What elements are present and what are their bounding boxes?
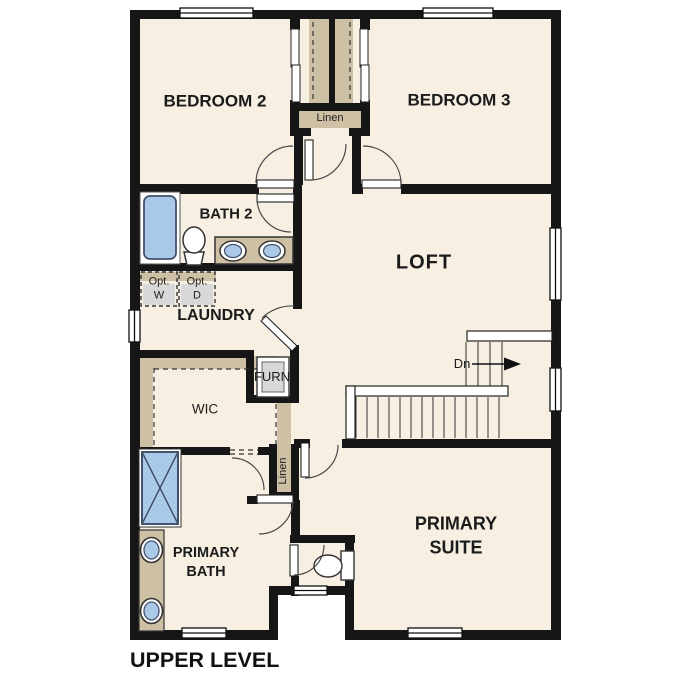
primary-bath-line1: PRIMARY xyxy=(173,545,239,561)
bath2-door-arc xyxy=(257,198,291,232)
primary-suite-line1: PRIMARY xyxy=(415,514,497,534)
label-furnace: FURN xyxy=(254,369,290,385)
floor-plan: BEDROOM 2 BEDROOM 3 Linen BATH 2 Opt. W … xyxy=(0,0,687,687)
bedroom3-door-arc xyxy=(363,146,401,184)
bath2-vanity xyxy=(215,237,293,264)
primary-suite-door-arc xyxy=(305,445,338,478)
bath2-toilet xyxy=(183,227,205,265)
label-bath2: BATH 2 xyxy=(199,206,252,225)
opt-dryer-line1: Opt. xyxy=(187,275,208,287)
label-primary-bath: PRIMARY BATH xyxy=(173,544,239,582)
bedroom2-door-arc xyxy=(256,146,293,183)
wic-door-arc xyxy=(232,458,264,490)
stair-railing xyxy=(346,386,508,396)
primary-suite-line2: SUITE xyxy=(429,538,482,558)
opt-washer-line2: W xyxy=(154,289,164,301)
stairs xyxy=(346,331,552,439)
label-bedroom3: BEDROOM 3 xyxy=(408,89,511,110)
hall-door-arc xyxy=(310,144,346,180)
label-primary-suite: PRIMARY SUITE xyxy=(415,512,497,561)
bath2-tub xyxy=(140,192,180,264)
label-stairs-down: Dn xyxy=(454,356,471,372)
label-opt-washer: Opt. W xyxy=(149,275,170,303)
wc-toilet xyxy=(314,551,354,580)
label-linen-lower: Linen xyxy=(277,458,291,485)
label-bedroom2: BEDROOM 2 xyxy=(164,90,267,111)
opt-dryer-line2: D xyxy=(193,289,201,301)
opt-washer-line1: Opt. xyxy=(149,275,170,287)
plan-title: UPPER LEVEL xyxy=(130,648,279,673)
label-wic: WIC xyxy=(192,402,218,419)
primary-bath-door-arc xyxy=(259,500,293,534)
shower xyxy=(139,449,181,527)
label-linen-upper: Linen xyxy=(317,112,344,126)
primary-bath-line2: BATH xyxy=(186,564,225,580)
stairs-down-arrow xyxy=(472,358,521,371)
label-loft: LOFT xyxy=(396,251,452,276)
closet-sliding-doors xyxy=(291,29,369,102)
laundry-door-leaf xyxy=(261,316,297,351)
primary-vanity xyxy=(139,530,164,631)
plan-graphics xyxy=(0,0,687,687)
label-opt-dryer: Opt. D xyxy=(187,275,208,303)
label-laundry: LAUNDRY xyxy=(177,306,255,326)
